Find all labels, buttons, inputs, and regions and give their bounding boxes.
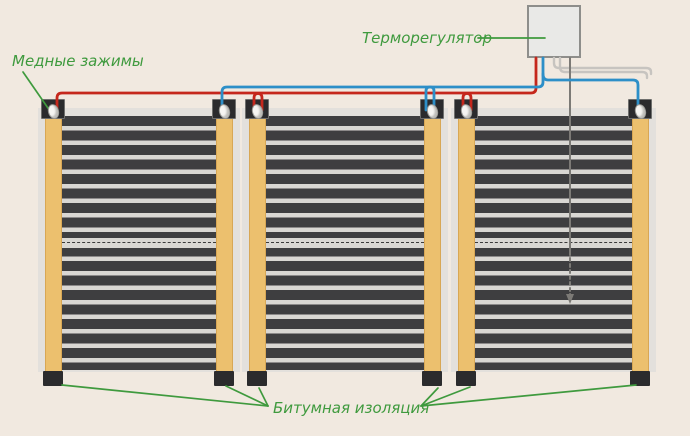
pointer-bitumen-1: [62, 385, 268, 406]
label-thermostat: Терморегулятор: [362, 29, 492, 47]
power-cable: [554, 58, 651, 78]
pointer-copper-clamps: [23, 72, 50, 111]
heating-film-wiring-diagram: Медные зажимы Терморегулятор Битумная из…: [0, 0, 690, 436]
floor-sensor-wire: [566, 58, 574, 304]
label-copper-clamps: Медные зажимы: [12, 52, 144, 70]
label-bitumen-insulation: Битумная изоляция: [273, 399, 429, 417]
pointer-bitumen-6: [421, 385, 636, 406]
blue-wire: [222, 58, 638, 110]
